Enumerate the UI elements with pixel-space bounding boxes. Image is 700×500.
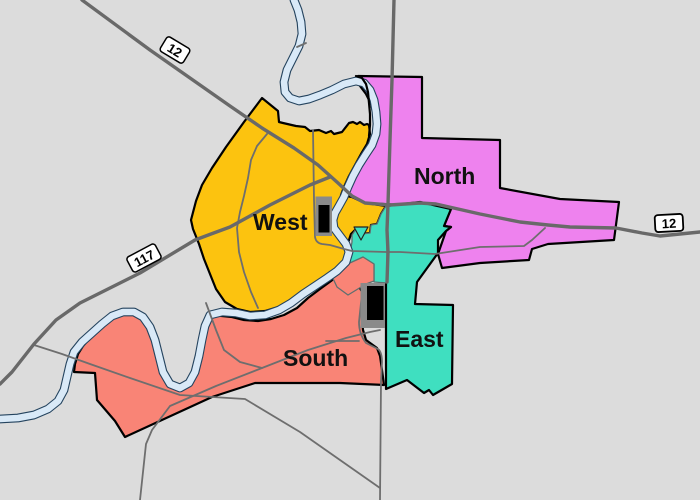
svg-text:South: South: [283, 345, 348, 371]
svg-text:East: East: [395, 326, 444, 352]
svg-text:West: West: [253, 209, 308, 235]
svg-text:North: North: [414, 163, 475, 189]
svg-text:12: 12: [661, 216, 676, 232]
